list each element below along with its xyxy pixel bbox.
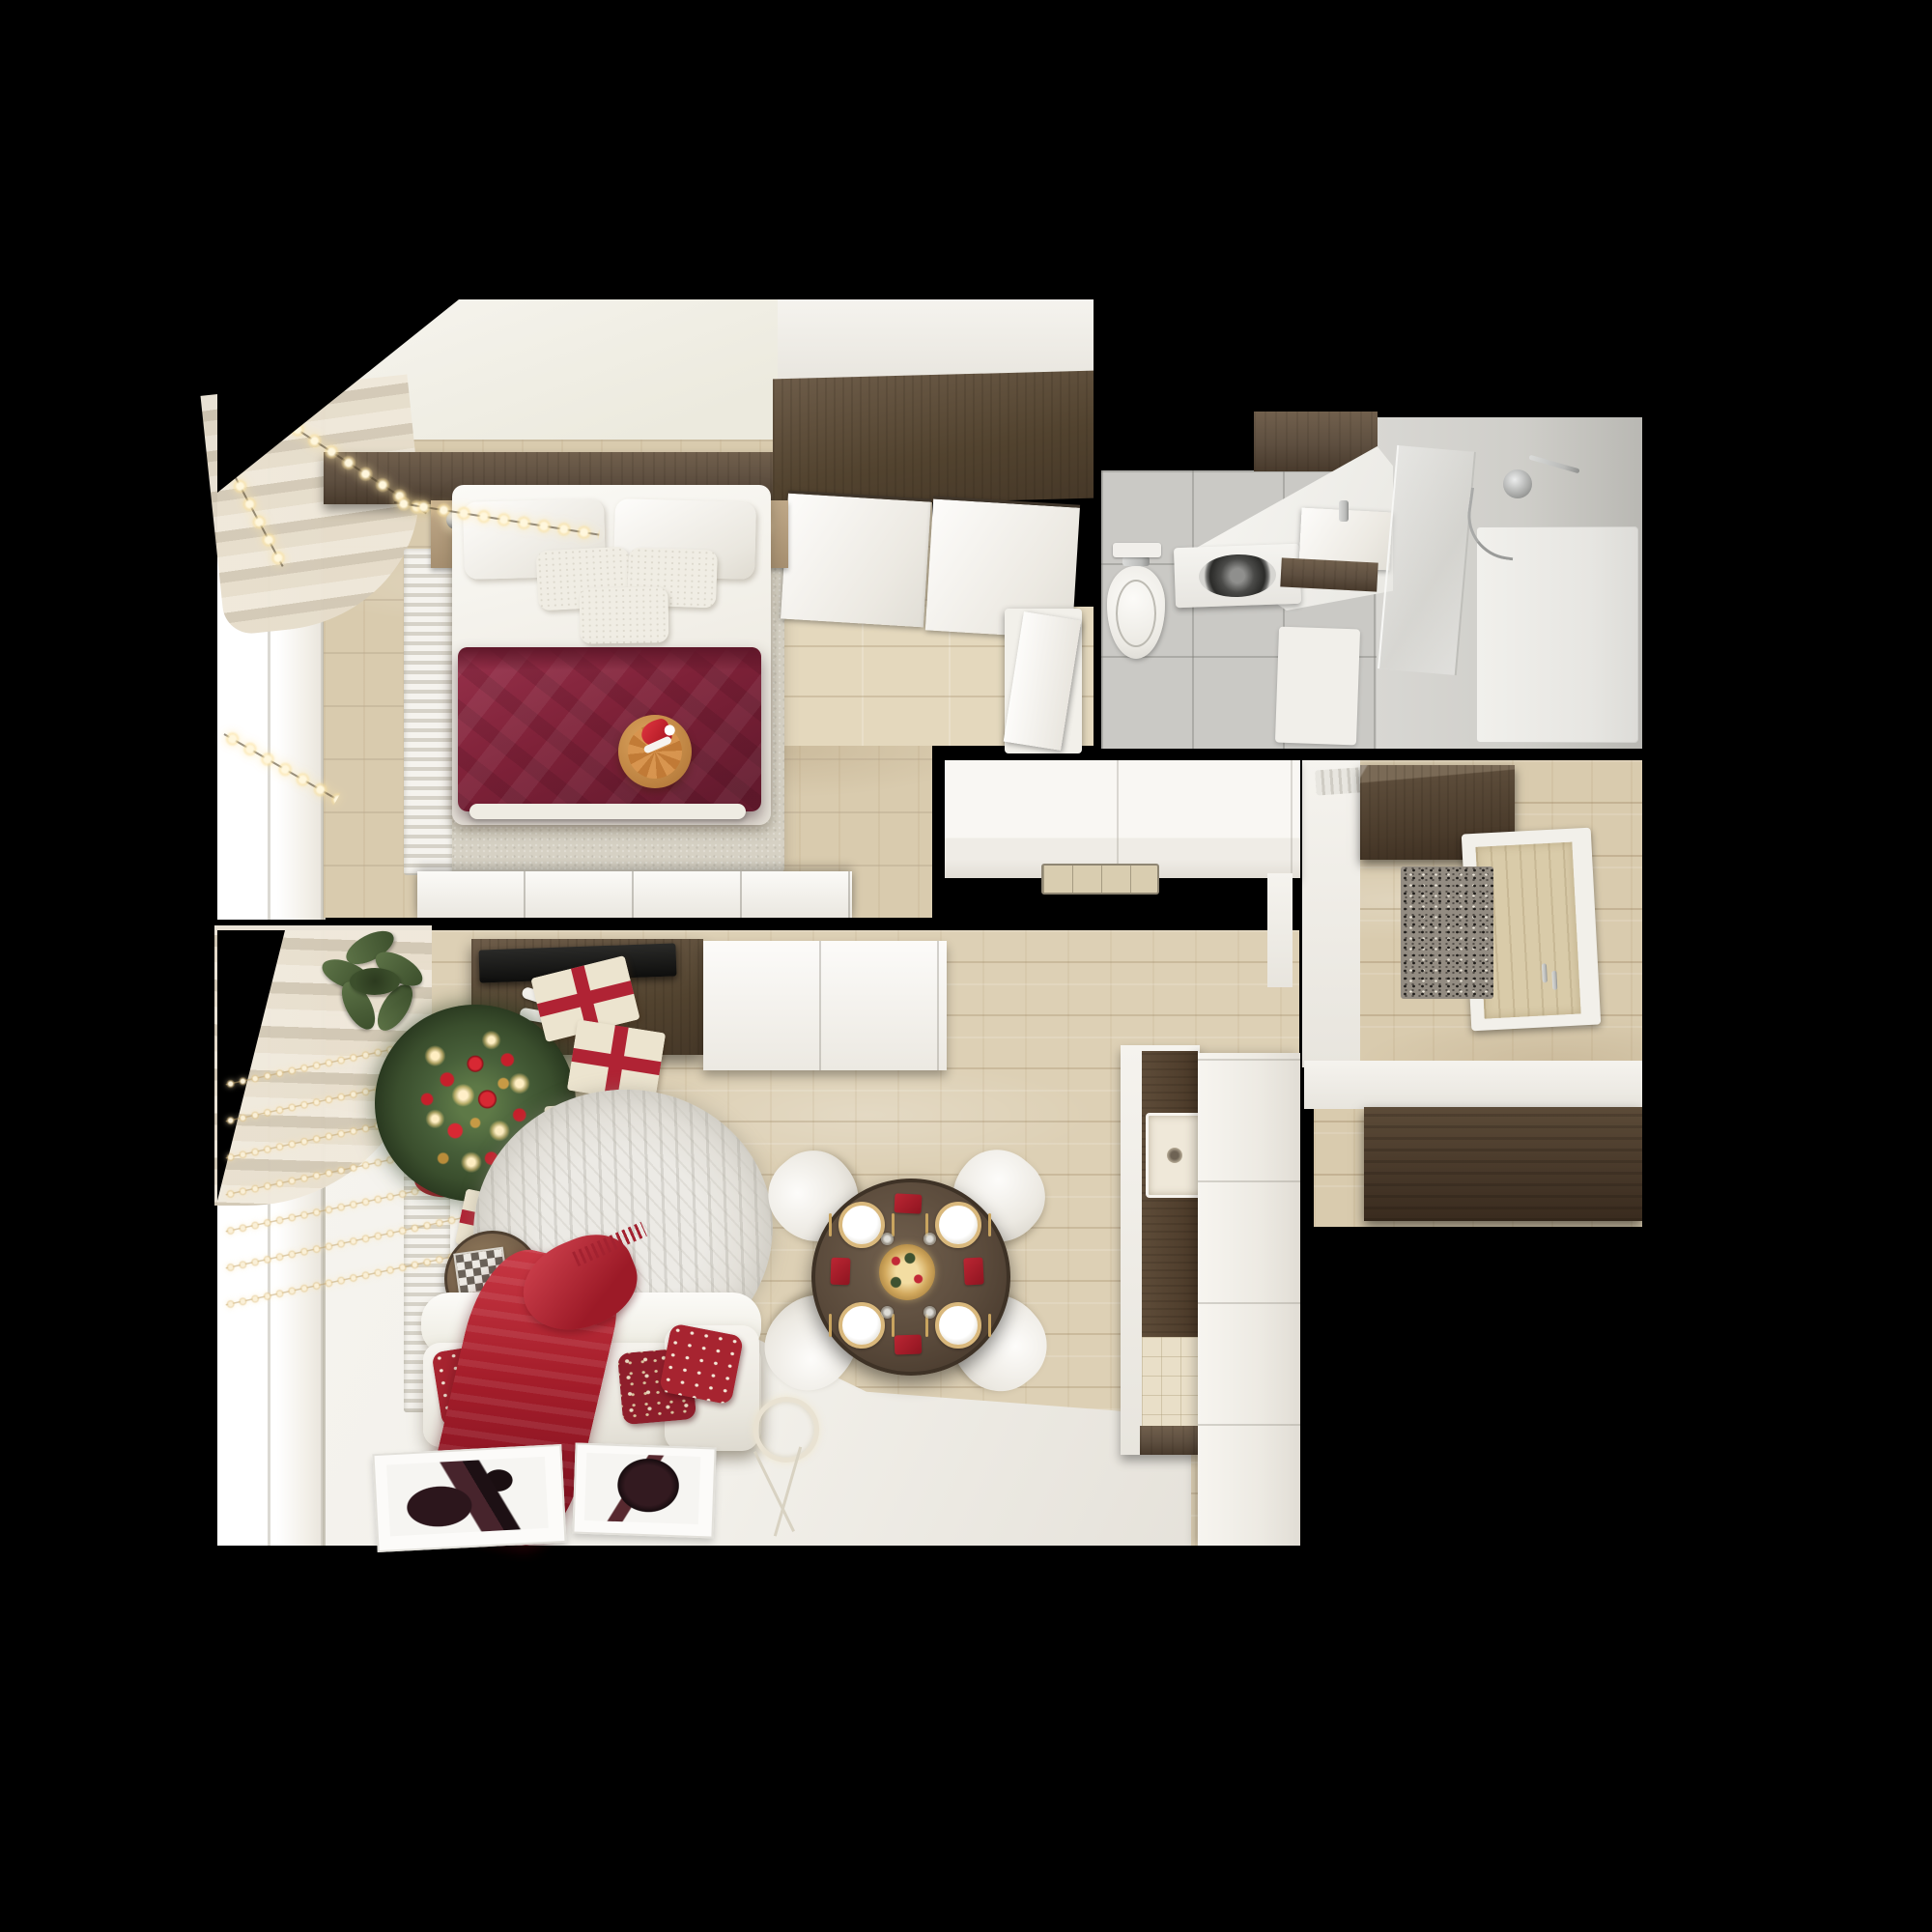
counter-side-panel [1267, 873, 1293, 987]
bed-small-pillow-3 [580, 586, 669, 644]
duvet-fold [458, 647, 761, 670]
entry-door-handle-2 [1551, 971, 1557, 990]
shower-tray [1476, 526, 1638, 743]
red-napkin-s [895, 1335, 923, 1355]
kitchen-counter [945, 760, 1300, 878]
kitchen-column-base [1140, 1426, 1198, 1455]
burgundy-duvet [458, 647, 761, 811]
kitchen-tile-patch [1142, 1337, 1198, 1428]
holiday-pillow-red-3 [659, 1322, 744, 1405]
plant-leaf [350, 968, 400, 995]
red-napkin-e [963, 1257, 983, 1285]
place-setting-plate-2 [935, 1202, 981, 1248]
hallway-bench [1364, 1107, 1642, 1221]
place-setting-plate-3 [838, 1302, 885, 1349]
bed [452, 485, 771, 825]
place-setting-plate-4 [935, 1302, 981, 1349]
poster-art-2 [584, 1453, 700, 1524]
gold-wreath-centerpiece [879, 1244, 935, 1300]
tall-kitchen-unit [1198, 1053, 1300, 1546]
doormat [1401, 867, 1493, 999]
potted-plant [321, 929, 422, 1040]
wardrobe-sliding-door-left [781, 491, 931, 628]
drinking-glass-3 [881, 1306, 894, 1319]
poster-art-1 [386, 1457, 549, 1536]
washer-drum [1198, 554, 1276, 599]
apartment-top-view-render [0, 0, 1932, 1932]
tv-wall-white-cabinet [703, 941, 947, 1070]
bed-sheet-edge [469, 804, 746, 819]
entry-door-handle-1 [1542, 963, 1548, 982]
hallway-step [1304, 1061, 1642, 1109]
bedroom-door-panel [1004, 611, 1082, 751]
framed-poster-1 [372, 1444, 566, 1552]
framed-poster-2 [572, 1442, 716, 1538]
wardrobe-top [773, 371, 1094, 507]
bedroom-radiator [404, 549, 452, 875]
toilet-flush-plate [1122, 556, 1150, 566]
drinking-glass-2 [923, 1233, 936, 1245]
sink-faucet [1339, 500, 1349, 522]
red-napkin-n [894, 1193, 922, 1213]
drinking-glass-1 [881, 1233, 894, 1245]
kitchen-sink [1146, 1113, 1204, 1198]
bedroom-sideboard [417, 871, 852, 918]
place-setting-plate-1 [838, 1202, 885, 1248]
bedroom-door [1005, 609, 1082, 753]
red-napkin-w [831, 1258, 851, 1286]
sink-shelf [1280, 557, 1378, 591]
drinking-glass-4 [923, 1306, 936, 1319]
hallway-ledge [1302, 760, 1360, 1067]
bath-mat [1275, 627, 1360, 746]
cooktop [1041, 864, 1159, 895]
light-switch [1113, 543, 1161, 557]
